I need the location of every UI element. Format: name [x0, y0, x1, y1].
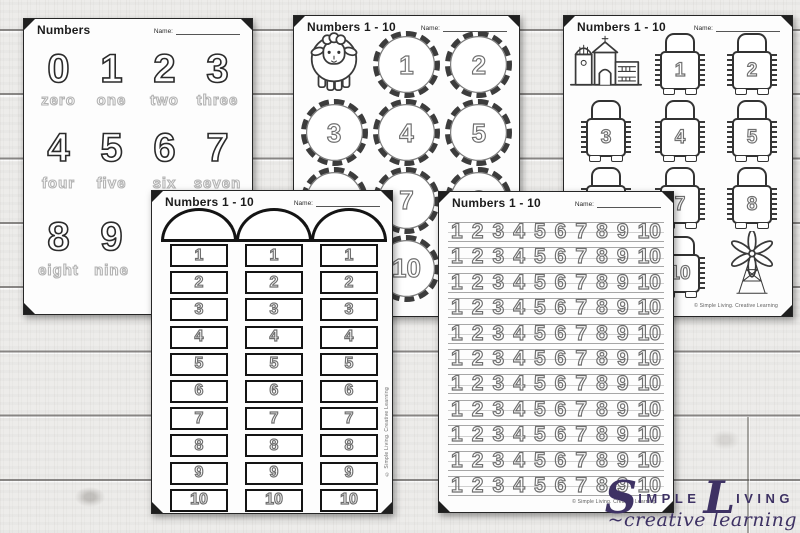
name-line: [316, 199, 380, 207]
traced-number: 1: [451, 374, 463, 394]
traced-number: 6: [555, 324, 567, 344]
traced-number: 7: [195, 411, 204, 427]
name-field: Name:: [154, 23, 240, 35]
digit-row: 0123: [32, 49, 244, 89]
traced-number: 3: [327, 120, 341, 146]
corner-decoration: [781, 305, 792, 316]
bubble-digit: 8: [47, 217, 69, 257]
traced-number: 10: [638, 222, 661, 242]
tractor-shape: 8: [727, 167, 777, 229]
silo-box: 4: [320, 326, 378, 349]
traced-number: 9: [617, 451, 629, 471]
silo-box: 3: [170, 298, 228, 321]
sheep-icon: [303, 30, 365, 99]
wreath-circle: 4: [373, 99, 440, 166]
corner-decoration: [439, 501, 450, 512]
traced-number: 4: [513, 324, 525, 344]
traced-number: 3: [492, 273, 504, 293]
traced-number: 4: [195, 329, 204, 345]
traced-number: 10: [190, 492, 208, 508]
traced-number: 10: [340, 492, 358, 508]
traced-number: 9: [617, 324, 629, 344]
traced-number: 6: [270, 383, 279, 399]
name-label: Name:: [421, 25, 440, 32]
trace-rows: 12345678910 12345678910 12345678910 1234…: [448, 222, 664, 496]
copyright-text-vertical: © Simple Living. Creative Learning: [384, 387, 390, 477]
traced-number: 8: [345, 438, 354, 454]
traced-number: 2: [472, 476, 484, 496]
sheet4-title: Numbers 1 - 10: [165, 195, 254, 209]
traced-number: 5: [747, 128, 758, 147]
traced-number: 2: [345, 275, 354, 291]
traced-number: 4: [513, 349, 525, 369]
traced-number: 5: [472, 120, 486, 146]
brand-logo-tagline: ~creative learning: [605, 511, 797, 530]
name-field: Name:: [694, 20, 780, 32]
trace-row: 12345678910: [448, 298, 664, 318]
silo-box: 7: [320, 407, 378, 430]
traced-number: 3: [345, 302, 354, 318]
corner-decoration: [241, 19, 252, 30]
traced-number: 10: [638, 400, 661, 420]
traced-number: 4: [270, 329, 279, 345]
traced-number: 1: [451, 298, 463, 318]
traced-number: 2: [472, 247, 484, 267]
traced-number: 8: [596, 298, 608, 318]
silo-boxes: 12345678910: [170, 244, 228, 512]
wreath-circle: 3: [301, 99, 368, 166]
traced-number: 8: [596, 400, 608, 420]
bubble-digit: 7: [206, 128, 228, 168]
silo-box: 9: [245, 462, 303, 485]
traced-number: 1: [399, 52, 413, 78]
tractor-body: 2: [732, 51, 772, 90]
traced-number: 4: [513, 247, 525, 267]
wreath-circle: 2: [445, 31, 512, 98]
traced-number: 6: [555, 222, 567, 242]
traced-number: 7: [270, 411, 279, 427]
traced-number: 10: [638, 374, 661, 394]
bubble-word: seven: [194, 176, 242, 191]
traced-number: 2: [472, 222, 484, 242]
silo-box: 6: [320, 380, 378, 403]
traced-number: 10: [638, 425, 661, 445]
traced-number: 7: [575, 349, 587, 369]
traced-number: 1: [345, 248, 354, 264]
traced-number: 6: [555, 349, 567, 369]
traced-number: 7: [399, 187, 413, 213]
traced-number: 3: [492, 247, 504, 267]
traced-number: 6: [555, 298, 567, 318]
silo-boxes: 12345678910: [320, 244, 378, 512]
farmhouse-icon: [568, 33, 644, 94]
bubble-word: two: [150, 93, 179, 108]
traced-number: 2: [472, 425, 484, 445]
scene: Numbers Name: 0123 zeroonetwothree 4567 …: [0, 0, 800, 533]
tractor-foot: [589, 155, 601, 162]
silo-box: 5: [245, 353, 303, 376]
silo-box: 5: [320, 353, 378, 376]
trace-row: 12345678910: [448, 247, 664, 267]
corner-decoration: [24, 19, 35, 30]
traced-number: 8: [596, 349, 608, 369]
traced-number: 1: [451, 349, 463, 369]
name-label: Name:: [154, 28, 173, 35]
traced-number: 5: [534, 273, 546, 293]
silo-column: 12345678910: [161, 208, 237, 512]
traced-number: 9: [617, 247, 629, 267]
traced-number: 5: [534, 324, 546, 344]
corner-decoration: [439, 192, 450, 203]
name-line: [597, 200, 661, 208]
traced-number: 2: [472, 52, 486, 78]
traced-number: 1: [451, 451, 463, 471]
bubble-word: nine: [94, 263, 129, 278]
traced-number: 10: [638, 247, 661, 267]
traced-number: 7: [575, 298, 587, 318]
silo-box: 10: [245, 489, 303, 512]
traced-number: 3: [492, 400, 504, 420]
wood-knot: [710, 430, 740, 450]
traced-number: 5: [534, 349, 546, 369]
traced-number: 2: [472, 451, 484, 471]
traced-number: 5: [534, 400, 546, 420]
word-row: zeroonetwothree: [32, 93, 244, 108]
silo-box: 8: [245, 434, 303, 457]
tractor-shape: 3: [581, 100, 631, 162]
wreath-circle: 5: [445, 99, 512, 166]
traced-number: 7: [575, 425, 587, 445]
traced-number: 1: [451, 222, 463, 242]
traced-number: 7: [575, 324, 587, 344]
bubble-word: six: [153, 176, 177, 191]
silo-box: 4: [245, 326, 303, 349]
bubble-word: five: [97, 176, 127, 191]
traced-number: 6: [555, 374, 567, 394]
traced-number: 1: [451, 476, 463, 496]
trace-row: 12345678910: [448, 273, 664, 293]
silo-box: 3: [320, 298, 378, 321]
silo-column: 12345678910: [311, 208, 387, 512]
logo-word-living: IVING: [736, 480, 794, 506]
traced-number: 7: [575, 273, 587, 293]
traced-number: 4: [345, 329, 354, 345]
silo-box: 1: [320, 244, 378, 267]
tractor-foot: [685, 155, 697, 162]
traced-number: 5: [534, 374, 546, 394]
traced-number: 8: [596, 273, 608, 293]
bubble-digit: 2: [153, 49, 175, 89]
tractor-foot: [735, 222, 747, 229]
sheet2-title: Numbers 1 - 10: [307, 20, 396, 34]
traced-number: 6: [555, 247, 567, 267]
traced-number: 9: [195, 465, 204, 481]
bubble-digit: 5: [100, 128, 122, 168]
traced-number: 8: [270, 438, 279, 454]
silo-box: 4: [170, 326, 228, 349]
bubble-digit: 1: [100, 49, 122, 89]
bubble-word: four: [42, 176, 75, 191]
tractor-foot: [685, 222, 697, 229]
silo-box: 2: [320, 271, 378, 294]
traced-number: 9: [617, 400, 629, 420]
wreath-circle: 1: [373, 31, 440, 98]
tractor-foot: [735, 155, 747, 162]
trace-row: 12345678910: [448, 374, 664, 394]
traced-number: 2: [472, 349, 484, 369]
copyright-text: © Simple Living. Creative Learning: [694, 303, 778, 309]
corner-decoration: [24, 303, 35, 314]
name-line: [443, 24, 507, 32]
sheet5-header: Numbers 1 - 10 Name:: [452, 196, 661, 210]
traced-number: 9: [617, 349, 629, 369]
traced-number: 8: [596, 451, 608, 471]
traced-number: 7: [345, 411, 354, 427]
silo-box: 9: [320, 462, 378, 485]
bubble-word: eight: [38, 263, 79, 278]
digit-row: 4567: [32, 128, 244, 168]
name-field: Name:: [421, 20, 507, 32]
silo-box: 10: [320, 489, 378, 512]
windmill-icon: [727, 231, 777, 302]
traced-number: 5: [534, 476, 546, 496]
silo-box: 6: [245, 380, 303, 403]
traced-number: 6: [555, 400, 567, 420]
traced-number: 7: [575, 247, 587, 267]
tractor-body: 1: [660, 51, 700, 90]
traced-number: 6: [555, 451, 567, 471]
silo-box: 1: [245, 244, 303, 267]
traced-number: 1: [675, 61, 686, 80]
traced-number: 4: [513, 425, 525, 445]
traced-number: 6: [195, 383, 204, 399]
tractor-body: 5: [732, 118, 772, 157]
silo-box: 9: [170, 462, 228, 485]
traced-number: 4: [513, 273, 525, 293]
tractor-foot: [757, 88, 769, 95]
corner-decoration: [381, 191, 392, 202]
name-field: Name:: [294, 195, 380, 207]
traced-number: 4: [513, 476, 525, 496]
traced-number: 9: [617, 374, 629, 394]
traced-number: 9: [617, 273, 629, 293]
traced-number: 3: [492, 222, 504, 242]
corner-decoration: [508, 16, 519, 27]
traced-number: 7: [575, 222, 587, 242]
corner-decoration: [781, 16, 792, 27]
traced-number: 5: [195, 356, 204, 372]
traced-number: 4: [513, 298, 525, 318]
traced-number: 3: [492, 451, 504, 471]
bubble-word: one: [97, 93, 127, 108]
brand-logo: S IMPLE L IVING ~creative learning: [605, 480, 797, 530]
traced-number: 5: [534, 451, 546, 471]
traced-number: 2: [195, 275, 204, 291]
tractor-foot: [663, 155, 675, 162]
traced-number: 3: [492, 425, 504, 445]
silo-dome: [311, 208, 387, 242]
traced-number: 8: [596, 374, 608, 394]
sheet2-header: Numbers 1 - 10 Name:: [307, 20, 507, 34]
silo-box: 10: [170, 489, 228, 512]
traced-number: 4: [513, 222, 525, 242]
traced-number: 10: [392, 255, 421, 281]
traced-number: 2: [747, 61, 758, 80]
wood-knot: [75, 487, 105, 507]
traced-number: 1: [451, 425, 463, 445]
traced-number: 1: [451, 400, 463, 420]
traced-number: 8: [596, 247, 608, 267]
traced-number: 2: [472, 298, 484, 318]
traced-number: 10: [638, 273, 661, 293]
traced-number: 5: [270, 356, 279, 372]
traced-number: 5: [534, 425, 546, 445]
bubble-digit: 0: [47, 49, 69, 89]
silo-box: 1: [170, 244, 228, 267]
traced-number: 9: [270, 465, 279, 481]
traced-number: 3: [270, 302, 279, 318]
sheet1-header: Numbers Name:: [37, 23, 240, 37]
trace-row: 12345678910: [448, 222, 664, 242]
tractor-foot: [663, 88, 675, 95]
bubble-word: zero: [41, 93, 76, 108]
tractor-foot: [685, 291, 697, 298]
traced-number: 2: [472, 324, 484, 344]
silo-box: 7: [245, 407, 303, 430]
traced-number: 10: [638, 298, 661, 318]
traced-number: 2: [472, 400, 484, 420]
silo-dome: [161, 208, 237, 242]
corner-decoration: [662, 192, 673, 203]
traced-number: 1: [270, 248, 279, 264]
traced-number: 9: [345, 465, 354, 481]
tractor-foot: [757, 155, 769, 162]
bubble-digit: 3: [206, 49, 228, 89]
bubble-digit: 6: [153, 128, 175, 168]
traced-number: 5: [534, 247, 546, 267]
silo-box: 5: [170, 353, 228, 376]
silo-box: 3: [245, 298, 303, 321]
tractor-foot: [735, 88, 747, 95]
sheet1-title: Numbers: [37, 23, 90, 37]
name-line: [716, 24, 780, 32]
traced-number: 3: [492, 374, 504, 394]
traced-number: 9: [617, 425, 629, 445]
tractor-shape: 1: [655, 33, 705, 95]
traced-number: 10: [638, 324, 661, 344]
silo-box: 2: [170, 271, 228, 294]
name-line: [176, 27, 240, 35]
tractor-shape: 5: [727, 100, 777, 162]
silo-dome: [236, 208, 312, 242]
traced-number: 5: [345, 356, 354, 372]
traced-number: 7: [675, 195, 686, 214]
traced-number: 8: [195, 438, 204, 454]
traced-number: 8: [747, 195, 758, 214]
trace-row: 12345678910: [448, 451, 664, 471]
traced-number: 4: [513, 400, 525, 420]
traced-number: 8: [596, 222, 608, 242]
traced-number: 10: [638, 349, 661, 369]
tractor-body: 3: [586, 118, 626, 157]
traced-number: 4: [513, 451, 525, 471]
corner-decoration: [152, 502, 163, 513]
corner-decoration: [564, 16, 575, 27]
sheet3-title: Numbers 1 - 10: [577, 20, 666, 34]
traced-number: 8: [596, 425, 608, 445]
sheet4-header: Numbers 1 - 10 Name:: [165, 195, 380, 209]
name-field: Name:: [575, 196, 661, 208]
traced-number: 2: [472, 374, 484, 394]
traced-number: 2: [472, 273, 484, 293]
trace-row: 12345678910: [448, 425, 664, 445]
traced-number: 10: [265, 492, 283, 508]
traced-number: 5: [534, 222, 546, 242]
traced-number: 7: [575, 451, 587, 471]
silo-column: 12345678910: [236, 208, 312, 512]
traced-number: 2: [270, 275, 279, 291]
logo-word-simple: IMPLE: [638, 480, 700, 506]
name-label: Name:: [694, 25, 713, 32]
silo-box: 7: [170, 407, 228, 430]
traced-number: 3: [492, 298, 504, 318]
traced-number: 7: [575, 476, 587, 496]
tractor-foot: [757, 222, 769, 229]
traced-number: 7: [575, 400, 587, 420]
silo-box: 2: [245, 271, 303, 294]
traced-number: 9: [617, 298, 629, 318]
sheet3-header: Numbers 1 - 10 Name:: [577, 20, 780, 34]
traced-number: 3: [492, 476, 504, 496]
tractor-body: 8: [732, 185, 772, 224]
corner-decoration: [381, 502, 392, 513]
traced-number: 9: [617, 222, 629, 242]
tractor-shape: 4: [655, 100, 705, 162]
traced-number: 10: [638, 451, 661, 471]
traced-number: 6: [555, 476, 567, 496]
traced-number: 4: [399, 120, 413, 146]
tractor-body: 4: [660, 118, 700, 157]
traced-number: 1: [195, 248, 204, 264]
traced-number: 3: [195, 302, 204, 318]
traced-number: 6: [555, 273, 567, 293]
traced-number: 3: [492, 324, 504, 344]
traced-number: 5: [534, 298, 546, 318]
word-row: fourfivesixseven: [32, 176, 244, 191]
traced-number: 3: [601, 128, 612, 147]
corner-decoration: [152, 191, 163, 202]
traced-number: 4: [675, 128, 686, 147]
traced-number: 6: [555, 425, 567, 445]
corner-decoration: [294, 16, 305, 27]
sheet5-title: Numbers 1 - 10: [452, 196, 541, 210]
name-label: Name:: [575, 201, 594, 208]
bubble-word: three: [197, 93, 239, 108]
traced-number: 7: [575, 374, 587, 394]
tractor-shape: 2: [727, 33, 777, 95]
traced-number: 4: [513, 374, 525, 394]
name-label: Name:: [294, 200, 313, 207]
silo-boxes: 12345678910: [245, 244, 303, 512]
traced-number: 6: [345, 383, 354, 399]
traced-number: 1: [451, 273, 463, 293]
traced-number: 3: [492, 349, 504, 369]
tractor-foot: [685, 88, 697, 95]
silo-box: 6: [170, 380, 228, 403]
bubble-digit: 4: [47, 128, 69, 168]
bubble-digit: 9: [100, 217, 122, 257]
silo-box: 8: [170, 434, 228, 457]
